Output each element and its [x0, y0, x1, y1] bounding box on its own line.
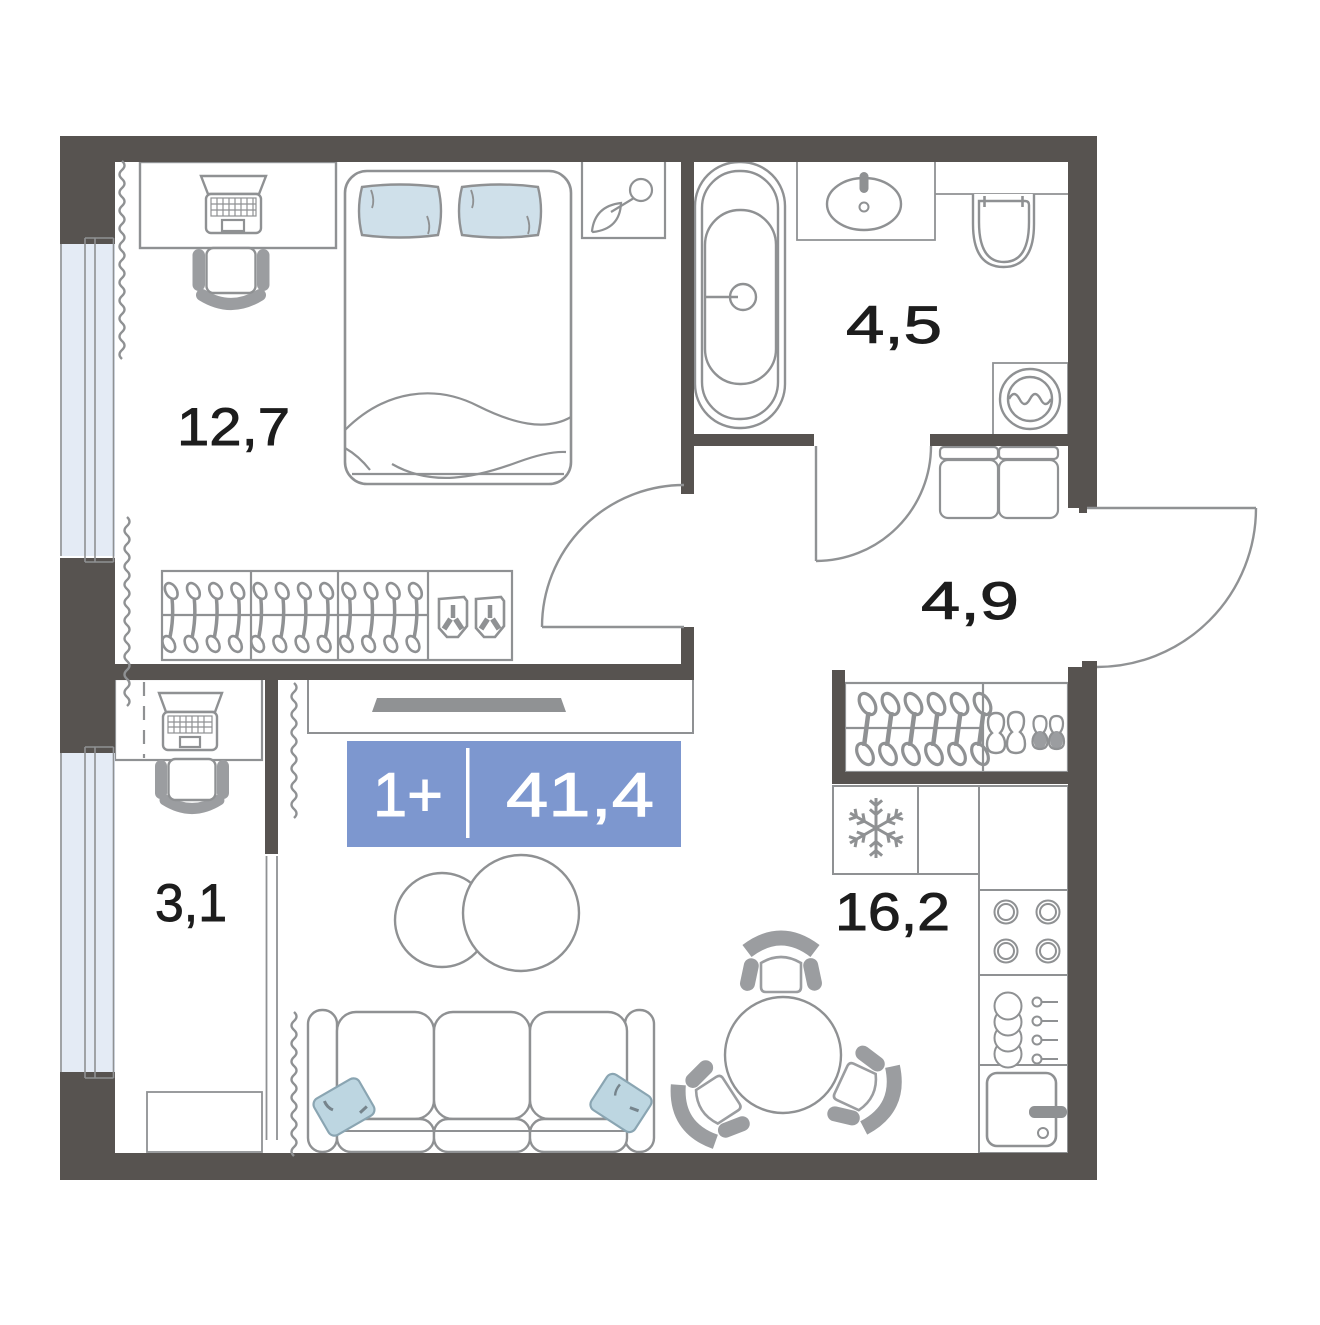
svg-text:16,2: 16,2: [835, 883, 950, 942]
svg-text:4,9: 4,9: [921, 572, 1019, 631]
svg-text:41,4: 41,4: [506, 761, 654, 830]
svg-text:4,5: 4,5: [846, 296, 942, 355]
svg-text:1+: 1+: [373, 761, 443, 830]
svg-text:3,1: 3,1: [155, 874, 227, 933]
svg-text:12,7: 12,7: [177, 398, 290, 457]
